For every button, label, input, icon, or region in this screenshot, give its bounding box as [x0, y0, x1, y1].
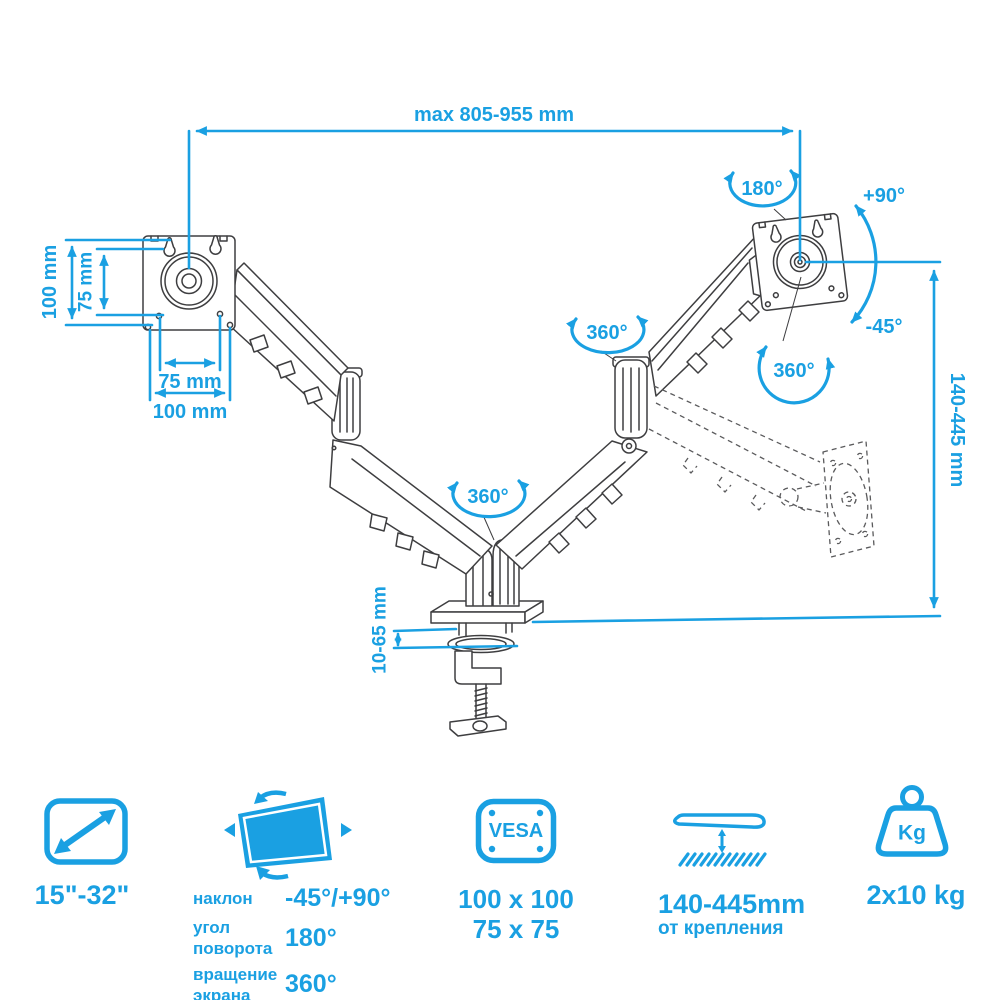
adjustment-name: наклон [193, 888, 285, 909]
mount-distance-value: 140-445mm [658, 890, 828, 918]
dim-vesa-100h-label: 100 mm [153, 401, 228, 423]
tilt-up-label: +90° [863, 185, 905, 207]
right-upper-arm [649, 235, 763, 396]
dim-vesa-75h-label: 75 mm [158, 371, 221, 393]
dim-vesa-75v-label: 75 mm [76, 252, 97, 312]
dim-max-width-label: max 805-955 mm [414, 104, 574, 126]
vesa-icon: VESA [474, 797, 558, 865]
adjustment-value: -45°/+90° [285, 884, 390, 913]
tilt-rotate-icon [222, 788, 354, 882]
screen-size-icon [42, 796, 130, 868]
dim-height-label: 140-445 mm [946, 373, 968, 488]
dim-clamp-label: 10-65 mm [370, 586, 391, 674]
adjustment-value: 180° [285, 924, 337, 953]
mount-distance-specs: 140-445mm от крепления [658, 890, 828, 940]
dimension-diagram: max 805-955 mm 100 mm 75 mm 75 mm 100 mm [0, 0, 1000, 768]
monitor-arm-spec-sheet: max 805-955 mm 100 mm 75 mm 75 mm 100 mm [0, 0, 1000, 1000]
adjustment-row: наклон -45°/+90° [193, 884, 393, 913]
rot-plate-label: 360° [773, 360, 814, 382]
vesa-icon-text: VESA [489, 820, 543, 842]
adjustment-row: вращение экрана 360° [193, 964, 393, 1000]
right-elbow-joint [613, 357, 649, 453]
vesa-size-100: 100 x 100 [441, 884, 591, 914]
rot-base-label: 360° [467, 486, 508, 508]
vesa-sizes: 100 x 100 75 x 75 [441, 884, 591, 944]
arm-line-art [143, 209, 874, 736]
weight-icon-text: Kg [898, 822, 926, 845]
weight-icon: Kg [866, 784, 958, 868]
mount-distance-icon [668, 810, 772, 868]
adjustment-row: угол поворота 180° [193, 917, 393, 960]
max-load-value: 2x10 kg [846, 881, 986, 909]
tilt-down-label: -45° [866, 316, 903, 338]
mount-distance-caption: от крепления [658, 918, 828, 940]
desk-clamp [431, 601, 543, 736]
adjustment-specs: наклон -45°/+90° угол поворота 180° вращ… [193, 884, 393, 1000]
adjustment-value: 360° [285, 970, 337, 999]
ghost-arm-position [649, 386, 874, 557]
rot-elbow-label: 360° [586, 322, 627, 344]
adjustment-name: вращение экрана [193, 964, 285, 1000]
dim-vesa-100v-label: 100 mm [39, 245, 61, 320]
adjustment-name: угол поворота [193, 917, 285, 960]
screen-size-value: 15"-32" [7, 881, 157, 909]
vesa-size-75: 75 x 75 [441, 914, 591, 944]
left-upper-arm [229, 263, 348, 421]
rot-swivel-label: 180° [741, 178, 782, 200]
